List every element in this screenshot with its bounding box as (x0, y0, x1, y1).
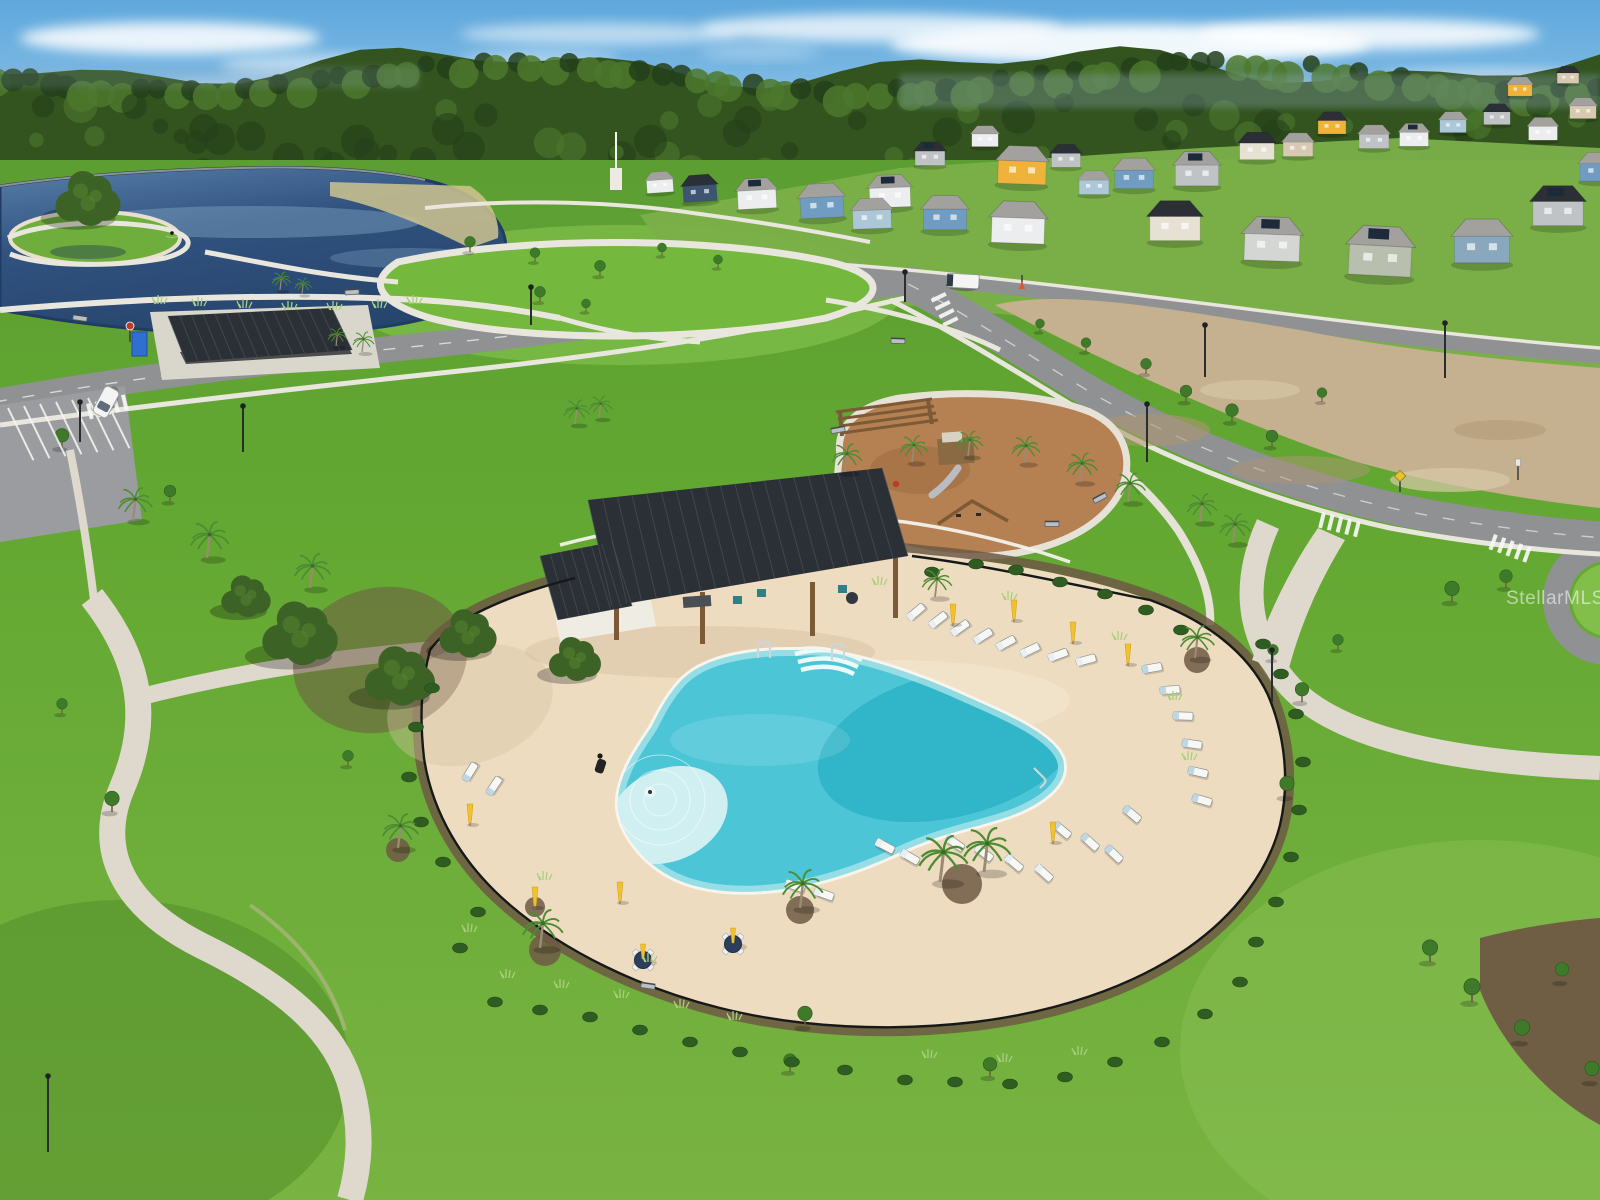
umbrella-shadow (1050, 841, 1062, 845)
solar-panels (881, 176, 895, 183)
tree-canopy (57, 698, 68, 709)
tree-shadow (528, 261, 539, 265)
tree-canopy (432, 113, 465, 146)
tree-canopy (1422, 940, 1437, 955)
palm-shadow (1228, 542, 1248, 548)
house (1240, 216, 1304, 270)
house-body (1557, 73, 1579, 84)
tree-canopy (1207, 51, 1225, 69)
palm-shadow (1195, 521, 1215, 527)
shrub (471, 907, 486, 917)
shrub (436, 857, 451, 867)
tree-canopy (535, 286, 546, 297)
palm-shadow (1075, 481, 1095, 487)
solar-panels (924, 143, 934, 148)
palm-shadow (1123, 501, 1143, 507)
house-body (1454, 235, 1509, 263)
window (1490, 115, 1494, 118)
window (1324, 124, 1328, 127)
lamp-head (902, 269, 908, 275)
tree-canopy (790, 78, 811, 99)
house-body (737, 188, 776, 209)
window (1363, 253, 1372, 261)
palm-shadow (964, 456, 981, 461)
tree-canopy (1134, 107, 1158, 131)
tree-shadow (1292, 701, 1307, 706)
shrub (409, 722, 424, 732)
tree-canopy (418, 55, 435, 72)
oak-highlight (569, 657, 581, 669)
tree-shadow (102, 811, 118, 817)
shrub (1296, 757, 1311, 767)
tree-shadow (340, 765, 352, 769)
palm-shadow (359, 352, 373, 356)
oak-highlight (455, 620, 468, 633)
shrub (1284, 852, 1299, 862)
window (1378, 138, 1382, 142)
tree-canopy (1500, 570, 1513, 583)
window (663, 183, 667, 187)
lamp-head (1202, 322, 1208, 328)
window (1547, 130, 1551, 134)
cafe-chair (733, 596, 742, 604)
window (1257, 241, 1265, 248)
palm-shadow (793, 906, 820, 914)
tree-shadow (1460, 1001, 1478, 1007)
window (1456, 123, 1460, 126)
palm-shadow (533, 946, 560, 954)
window (1139, 175, 1145, 180)
oak-highlight (240, 594, 251, 605)
tree-reflection (50, 245, 126, 259)
lounge-chair (1160, 685, 1182, 696)
shrub (1003, 1079, 1018, 1089)
window (1489, 243, 1497, 250)
palm-shadow (1189, 657, 1211, 663)
house (1451, 219, 1513, 271)
tree-canopy (1333, 634, 1344, 645)
shrub (1269, 897, 1284, 907)
house (1238, 132, 1277, 164)
tree-canopy (734, 106, 761, 133)
house-body (1283, 142, 1313, 157)
umbrella-shadow (1011, 619, 1023, 623)
house (988, 200, 1049, 252)
house (1147, 201, 1204, 248)
shrub (838, 1065, 853, 1075)
shrub (733, 1047, 748, 1057)
window (950, 215, 956, 220)
window (691, 190, 696, 195)
window (1025, 225, 1033, 232)
tree-canopy (843, 83, 869, 109)
oak-highlight (283, 616, 300, 633)
house-body (1348, 243, 1412, 277)
umbrella-shadow (467, 823, 479, 827)
tree-canopy (1295, 683, 1309, 697)
shrub (1292, 805, 1307, 815)
palm-shadow (304, 587, 328, 594)
tree-canopy (465, 236, 476, 247)
window (1086, 184, 1090, 188)
tree-canopy (1317, 388, 1327, 398)
tree-canopy (1445, 581, 1459, 595)
shrub (1249, 937, 1264, 947)
shrub (785, 1057, 800, 1067)
tree-canopy (1514, 1020, 1529, 1035)
solar-panels (1548, 188, 1565, 196)
shrub (425, 683, 440, 693)
tree-canopy (660, 111, 679, 130)
tree-canopy (629, 60, 650, 81)
shrub (1058, 1072, 1073, 1082)
lawn-loop-path (380, 243, 873, 337)
house-body (1359, 134, 1389, 149)
tree-shadow (1315, 401, 1326, 405)
tree-shadow (1330, 649, 1342, 653)
window (1335, 124, 1339, 127)
outdoor-sofa (683, 595, 712, 608)
house-body (1508, 84, 1532, 96)
house-body (1079, 180, 1109, 195)
tree-canopy (714, 255, 723, 264)
palm-shadow (299, 294, 310, 297)
house (1050, 144, 1082, 171)
tree-canopy (781, 142, 798, 159)
house (921, 196, 970, 237)
shrub (1274, 669, 1289, 679)
palm-shadow (1019, 462, 1037, 467)
bench-back (345, 289, 359, 290)
cloud (20, 22, 320, 54)
house (1281, 133, 1314, 161)
shrub (948, 1077, 963, 1087)
tree-canopy (983, 1058, 997, 1072)
swing-seat (956, 514, 961, 517)
house (1507, 77, 1534, 100)
lamp-head (528, 284, 534, 290)
window (1248, 147, 1253, 151)
house-body (1533, 200, 1583, 225)
house-body (1484, 111, 1510, 124)
house-body (1115, 169, 1153, 188)
tree-canopy (530, 248, 540, 258)
house (1568, 98, 1598, 123)
chair-headrest (1173, 712, 1179, 720)
aerial-photo-stage: StellarMLS (0, 0, 1600, 1200)
house-body (1570, 105, 1596, 118)
house-body (991, 216, 1045, 244)
window (1302, 146, 1306, 150)
tree-canopy (1180, 385, 1192, 397)
window (861, 215, 867, 220)
shrub (1256, 639, 1271, 649)
shrub (402, 772, 417, 782)
window (978, 137, 982, 140)
oak-highlight (81, 196, 96, 211)
tree-shadow (795, 1026, 811, 1032)
tree-canopy (105, 791, 119, 805)
cabana-post (893, 558, 898, 618)
shrub (898, 1075, 913, 1085)
house-body (915, 151, 945, 166)
tree-canopy (697, 93, 721, 117)
palm-shadow (907, 461, 925, 466)
solar-panels (1261, 219, 1280, 229)
window (810, 203, 817, 209)
window (1098, 184, 1102, 188)
window (1028, 167, 1035, 173)
window (1009, 167, 1016, 173)
shrub (1139, 605, 1154, 615)
van-cab (947, 274, 954, 286)
distant-haze (900, 74, 1600, 108)
window (1181, 223, 1188, 229)
park-bench (891, 338, 905, 343)
window (1571, 76, 1574, 79)
cafe-chair (838, 585, 847, 593)
window (1562, 76, 1565, 79)
palm-shadow (595, 418, 610, 422)
shrub (1198, 1009, 1213, 1019)
house (1438, 112, 1468, 137)
tree-canopy (1266, 430, 1278, 442)
tree-canopy (534, 127, 565, 158)
palm-shadow (392, 847, 416, 854)
tree-shadow (712, 267, 722, 271)
aerial-photo: StellarMLS (0, 0, 1600, 1200)
tree-shadow (980, 1076, 995, 1081)
tree-canopy (189, 114, 218, 143)
window (1124, 175, 1130, 180)
window (1514, 88, 1518, 91)
window (1544, 208, 1551, 214)
lamp-head (1442, 320, 1448, 326)
window (704, 189, 709, 194)
tree-shadow (1277, 796, 1293, 802)
stop-sign-face (126, 322, 134, 330)
shrub (969, 559, 984, 569)
shrub (1155, 1037, 1170, 1047)
lamp-head (1269, 647, 1275, 653)
shrub (1009, 565, 1024, 575)
shrub (1233, 977, 1248, 987)
tree-canopy (582, 299, 591, 308)
tree-canopy (1081, 338, 1091, 348)
tree-shadow (1552, 981, 1567, 986)
chair-headrest (1182, 739, 1189, 748)
window (827, 202, 834, 208)
house-body (1052, 153, 1081, 167)
watermark: StellarMLS (1506, 588, 1600, 609)
tree-canopy (634, 125, 667, 158)
palm-shadow (930, 596, 950, 602)
umbrella-shadow (1070, 641, 1082, 645)
tree-canopy (164, 485, 176, 497)
tree-canopy (236, 121, 265, 150)
window (1290, 146, 1294, 150)
shrub (453, 943, 468, 953)
house (1556, 66, 1580, 86)
window (879, 193, 885, 198)
cabana-post (810, 582, 815, 636)
window (1523, 88, 1527, 91)
bird-on-lake (170, 231, 174, 235)
window (934, 155, 938, 159)
tree-canopy (1226, 404, 1239, 417)
solar-panels (748, 180, 761, 187)
window (1202, 171, 1208, 176)
oak-highlight (563, 647, 575, 659)
window (895, 192, 901, 197)
tree-shadow (656, 255, 666, 259)
tree-canopy (517, 55, 543, 81)
tree-shadow (1511, 1041, 1528, 1047)
tree-canopy (1555, 963, 1569, 977)
oak-highlight (73, 184, 88, 199)
tree-canopy (63, 89, 97, 123)
tree-shadow (1138, 373, 1150, 377)
tree-shadow (580, 311, 590, 315)
house (1173, 152, 1222, 193)
umbrella-shadow (1125, 663, 1137, 667)
swing-seat (976, 513, 981, 516)
house (850, 197, 894, 234)
house (1482, 104, 1512, 129)
shrub (1174, 625, 1189, 635)
lounge-chair (1173, 712, 1195, 723)
tree-canopy (760, 91, 780, 111)
tree-shadow (1264, 446, 1277, 451)
palm-shadow (840, 471, 860, 477)
window (988, 137, 992, 140)
house-body (1440, 119, 1466, 132)
window (1588, 168, 1593, 173)
child-in-water (648, 790, 652, 794)
window (922, 155, 926, 159)
tree-shadow (781, 1071, 795, 1076)
house (994, 145, 1050, 192)
palm-shadow (976, 870, 1007, 879)
solar-panels (1368, 228, 1389, 239)
palm-shadow (201, 556, 226, 563)
tree-canopy (658, 243, 667, 252)
window (1058, 157, 1062, 161)
window (1500, 115, 1504, 118)
house-body (1150, 215, 1200, 240)
park-bench (1045, 522, 1059, 527)
window (1406, 136, 1410, 140)
tree-canopy (1169, 52, 1188, 71)
house-body (852, 209, 891, 230)
oak-highlight (235, 585, 246, 596)
cafe-table (846, 592, 858, 604)
house-body (1318, 120, 1346, 134)
lamp-head (45, 1073, 51, 1079)
shrub (633, 1025, 648, 1035)
tree-shadow (1223, 421, 1237, 426)
palm-shadow (127, 519, 149, 525)
tree-shadow (1419, 961, 1436, 967)
window (1467, 243, 1475, 250)
chair-headrest (1160, 686, 1167, 694)
umbrella-shadow (950, 623, 962, 627)
window (1564, 208, 1571, 214)
cafe-chair (757, 589, 766, 597)
tree-canopy (29, 133, 44, 148)
house-body (923, 208, 966, 230)
cloud (700, 45, 820, 59)
house (1316, 112, 1347, 138)
tree-canopy (449, 59, 479, 89)
house-body (1175, 164, 1218, 186)
palm-shadow (932, 879, 964, 888)
window (1418, 136, 1422, 140)
tree-shadow (54, 713, 66, 717)
tree-shadow (462, 251, 474, 255)
tree-canopy (798, 1006, 812, 1020)
window (1279, 241, 1287, 248)
cloud (460, 23, 740, 45)
shrub (683, 1037, 698, 1047)
window (877, 215, 883, 220)
oak-highlight (291, 630, 308, 647)
solar-panels (1408, 125, 1418, 130)
tree-canopy (84, 126, 104, 146)
tree-canopy (559, 53, 578, 72)
tree-shadow (1079, 351, 1090, 355)
tree-canopy (1141, 358, 1152, 369)
shrub (1098, 589, 1113, 599)
tree-canopy (1036, 319, 1045, 328)
person-sitting (597, 753, 602, 758)
house-body (972, 133, 998, 146)
window (933, 215, 939, 220)
house (1527, 117, 1559, 144)
house (1357, 125, 1390, 153)
tree-canopy (595, 260, 606, 271)
tree-canopy (474, 103, 498, 127)
window (1535, 130, 1539, 134)
window (1261, 147, 1266, 151)
lamp-head (77, 399, 83, 405)
house (1398, 123, 1430, 150)
palm-shadow (571, 424, 588, 429)
window (746, 195, 752, 200)
window (1366, 138, 1370, 142)
portable-toilet (132, 332, 147, 356)
tree-shadow (162, 501, 175, 506)
house-body (1400, 132, 1429, 146)
shrub (533, 1005, 548, 1015)
tree-shadow (52, 447, 67, 452)
tree-canopy (848, 111, 867, 130)
window (1446, 123, 1450, 126)
house-body (800, 195, 844, 219)
window (1388, 254, 1397, 262)
oak-highlight (461, 631, 474, 644)
oak-highlight (392, 673, 408, 689)
sales-tower (610, 168, 622, 190)
tree-shadow (592, 275, 604, 279)
tree-canopy (153, 118, 168, 133)
window (1004, 224, 1012, 231)
house-body (998, 159, 1047, 185)
shrub (1289, 709, 1304, 719)
umbrella-shadow (532, 906, 544, 910)
tree-canopy (121, 94, 146, 119)
palm-shadow (333, 346, 346, 350)
